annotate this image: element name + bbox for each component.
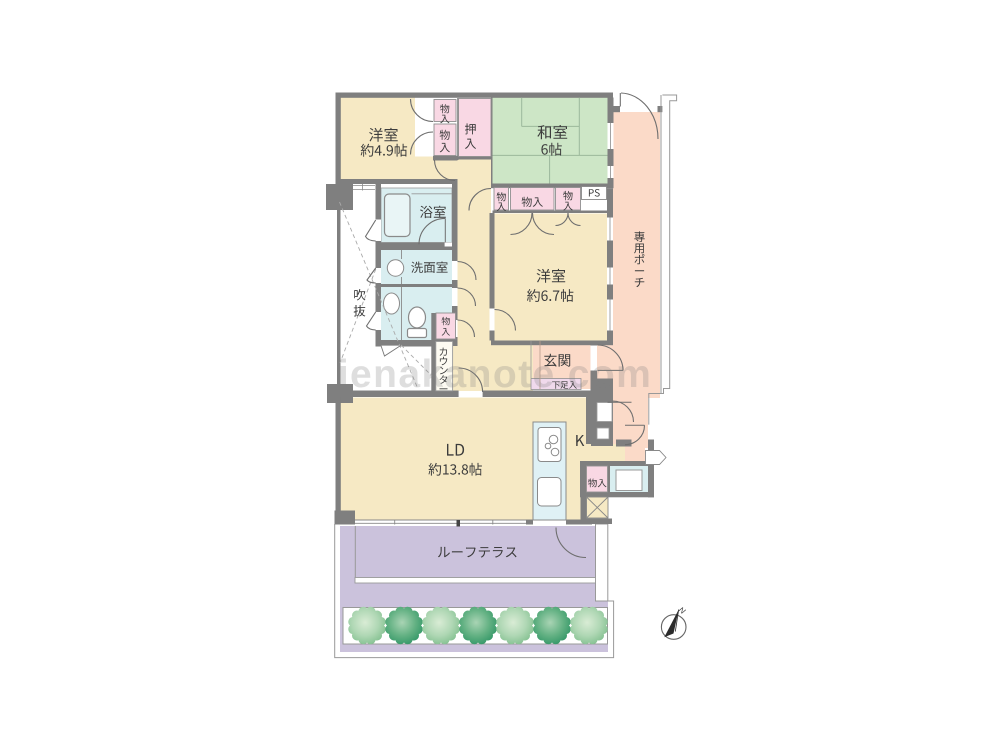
svg-text:ienakanote.com: ienakanote.com: [338, 353, 652, 396]
